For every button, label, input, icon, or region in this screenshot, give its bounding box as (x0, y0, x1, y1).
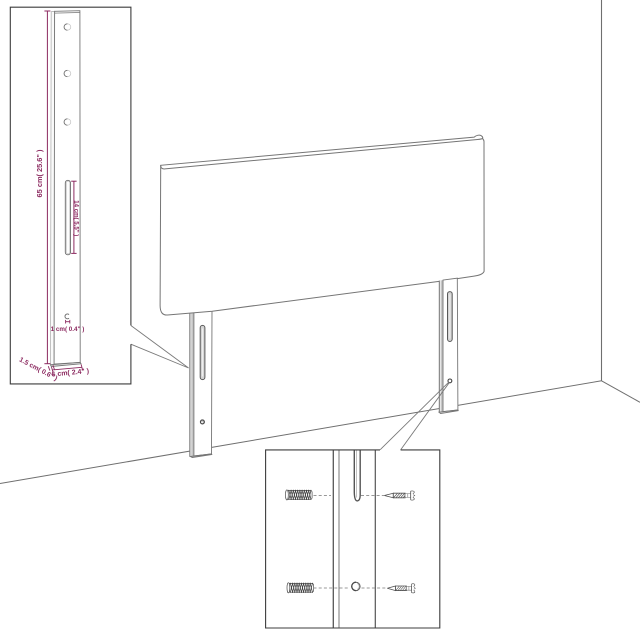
svg-text:1 cm( 0.4" ): 1 cm( 0.4" ) (51, 326, 85, 333)
svg-text:14 cm( 5.5" ): 14 cm( 5.5" ) (73, 200, 80, 236)
svg-text:65 cm( 25.6" ): 65 cm( 25.6" ) (35, 149, 44, 197)
